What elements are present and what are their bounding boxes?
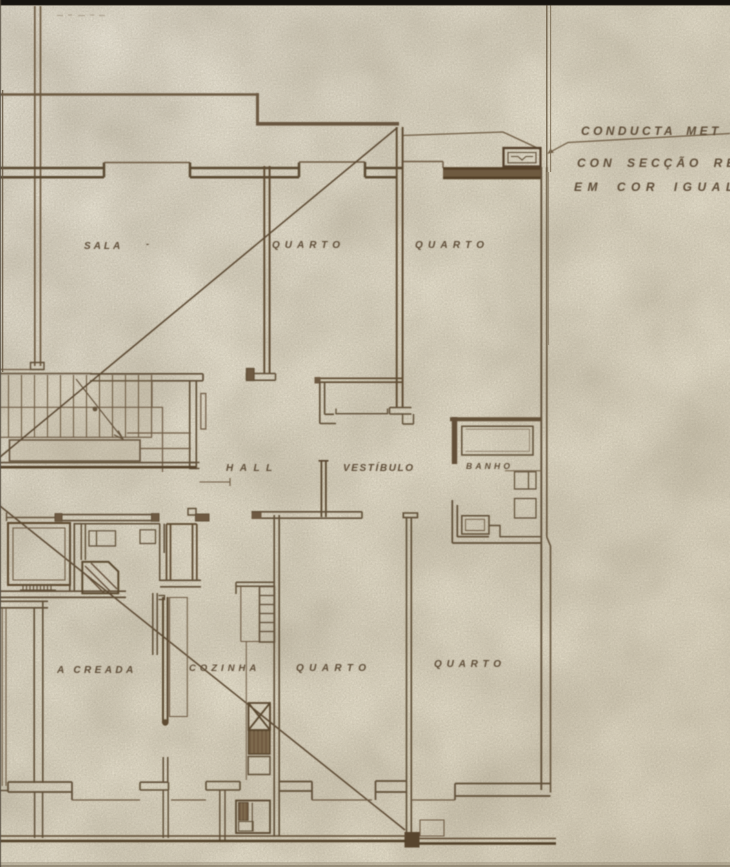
- svg-text:SALA: SALA: [84, 241, 123, 252]
- svg-text:VESTÍBULO: VESTÍBULO: [343, 461, 415, 474]
- svg-text:COZINHA: COZINHA: [189, 663, 260, 674]
- svg-text:BANHO: BANHO: [466, 461, 513, 471]
- svg-text:EM COR IGUAL .: EM COR IGUAL .: [574, 180, 730, 194]
- svg-text:CON SECÇÃO RECT: CON SECÇÃO RECT: [577, 155, 730, 170]
- svg-text:QUARTO: QUARTO: [434, 659, 506, 670]
- svg-text:CONDUCTA MET: CONDUCTA MET: [581, 124, 722, 138]
- svg-text:A CREADA: A CREADA: [56, 665, 137, 676]
- svg-text:HALL: HALL: [226, 463, 279, 474]
- svg-text:QUARTO: QUARTO: [415, 240, 489, 251]
- svg-text:QUARTO: QUARTO: [272, 240, 345, 251]
- svg-text:QUARTO: QUARTO: [296, 663, 371, 674]
- svg-text:-: -: [146, 239, 149, 249]
